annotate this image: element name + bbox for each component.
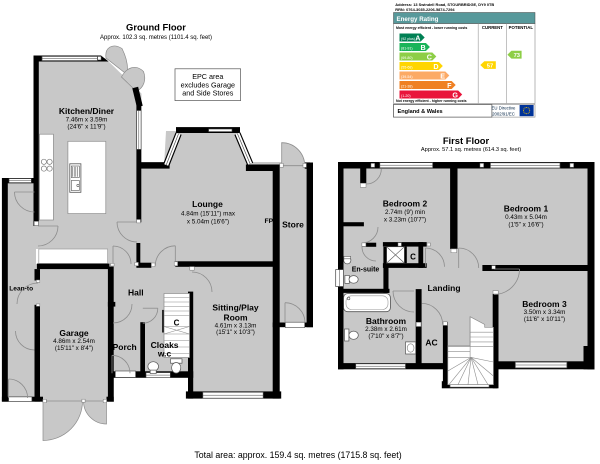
- svg-text:2.74m (9') min: 2.74m (9') min: [385, 209, 426, 216]
- svg-text:Bedroom 2: Bedroom 2: [383, 199, 428, 209]
- svg-text:A: A: [415, 33, 420, 42]
- svg-text:57: 57: [487, 64, 493, 70]
- svg-text:Store: Store: [282, 220, 304, 230]
- svg-text:(81-91): (81-91): [401, 46, 413, 50]
- svg-text:B: B: [420, 43, 425, 52]
- svg-text:RRN: 0764-3035-2206-5874-7294: RRN: 0764-3035-2206-5874-7294: [395, 7, 455, 12]
- svg-text:England & Wales: England & Wales: [398, 109, 443, 115]
- svg-text:Kitchen/Diner: Kitchen/Diner: [59, 106, 115, 116]
- svg-text:EU Directive: EU Directive: [492, 106, 516, 111]
- svg-text:Energy Rating: Energy Rating: [397, 16, 439, 23]
- svg-text:C: C: [174, 319, 180, 328]
- svg-text:4.86m x 2.54m: 4.86m x 2.54m: [53, 338, 95, 345]
- svg-text:Porch: Porch: [113, 342, 137, 352]
- svg-text:FP: FP: [264, 218, 273, 225]
- svg-text:C: C: [427, 52, 432, 61]
- svg-text:(55-68): (55-68): [401, 65, 413, 69]
- svg-text:Hall: Hall: [128, 288, 144, 298]
- svg-text:Approx. 57.1 sq. metres (614.3: Approx. 57.1 sq. metres (614.3 sq. feet): [421, 147, 521, 153]
- svg-text:(39-54): (39-54): [401, 75, 413, 79]
- svg-text:7.46m x 3.59m: 7.46m x 3.59m: [66, 117, 108, 124]
- svg-text:Room: Room: [223, 313, 248, 323]
- svg-text:(69-80): (69-80): [401, 56, 413, 60]
- svg-text:CURRENT: CURRENT: [482, 25, 503, 30]
- svg-text:Lean-to: Lean-to: [9, 285, 33, 292]
- svg-text:(21-38): (21-38): [401, 84, 413, 88]
- svg-text:D: D: [433, 62, 438, 71]
- svg-text:Most energy efficient - lower: Most energy efficient - lower running co…: [396, 26, 467, 30]
- svg-text:En-suite: En-suite: [352, 267, 380, 274]
- svg-text:Bedroom 1: Bedroom 1: [504, 204, 549, 214]
- svg-text:POTENTIAL: POTENTIAL: [509, 25, 534, 30]
- svg-text:3.50m x 3.34m: 3.50m x 3.34m: [524, 309, 566, 316]
- svg-text:(11'6" x 10'11"): (11'6" x 10'11"): [524, 316, 565, 323]
- svg-text:73: 73: [514, 53, 521, 59]
- svg-text:4.84m (15'11") max: 4.84m (15'11") max: [181, 211, 236, 218]
- svg-text:Garage: Garage: [59, 328, 89, 338]
- svg-text:(1'5" x 16'6"): (1'5" x 16'6"): [508, 222, 543, 229]
- svg-text:Bedroom 3: Bedroom 3: [522, 299, 567, 309]
- svg-text:AC: AC: [425, 338, 437, 348]
- svg-text:Not energy efficient - higher: Not energy efficient - higher running co…: [396, 99, 467, 103]
- svg-text:2.38m x 2.61m: 2.38m x 2.61m: [365, 326, 407, 333]
- svg-text:w.c: w.c: [157, 349, 172, 359]
- svg-text:Lounge: Lounge: [192, 199, 223, 209]
- svg-text:(92 plus): (92 plus): [401, 37, 415, 41]
- svg-text:Approx. 102.3 sq. metres (1101: Approx. 102.3 sq. metres (1101.4 sq. fee…: [100, 35, 212, 41]
- svg-text:(24'6" x 11'9"): (24'6" x 11'9"): [67, 124, 105, 131]
- svg-text:x 3.23m (10'7"): x 3.23m (10'7"): [384, 217, 426, 224]
- svg-text:Total area: approx. 159.4 sq.: Total area: approx. 159.4 sq. metres (17…: [194, 450, 401, 460]
- svg-text:(15'1" x 10'3"): (15'1" x 10'3"): [216, 329, 255, 336]
- svg-text:and Side Stores: and Side Stores: [182, 89, 234, 98]
- svg-text:Bathroom: Bathroom: [366, 316, 407, 326]
- svg-text:Landing: Landing: [427, 283, 460, 293]
- svg-text:E: E: [440, 71, 445, 80]
- svg-text:(15'11" x 8'4"): (15'11" x 8'4"): [55, 345, 93, 352]
- svg-text:C: C: [410, 253, 416, 262]
- svg-text:(1-20): (1-20): [401, 94, 411, 98]
- svg-text:2002/91/EC: 2002/91/EC: [492, 111, 515, 116]
- svg-text:F: F: [447, 81, 452, 90]
- svg-text:(7'10" x 8'7"): (7'10" x 8'7"): [368, 333, 403, 340]
- svg-text:First Floor: First Floor: [443, 135, 490, 146]
- svg-text:Sitting/Play: Sitting/Play: [212, 303, 259, 313]
- svg-text:Ground Floor: Ground Floor: [126, 22, 186, 33]
- svg-text:x 5.04m (16'6"): x 5.04m (16'6"): [187, 219, 229, 226]
- svg-text:0.43m x 5.04m: 0.43m x 5.04m: [505, 214, 547, 221]
